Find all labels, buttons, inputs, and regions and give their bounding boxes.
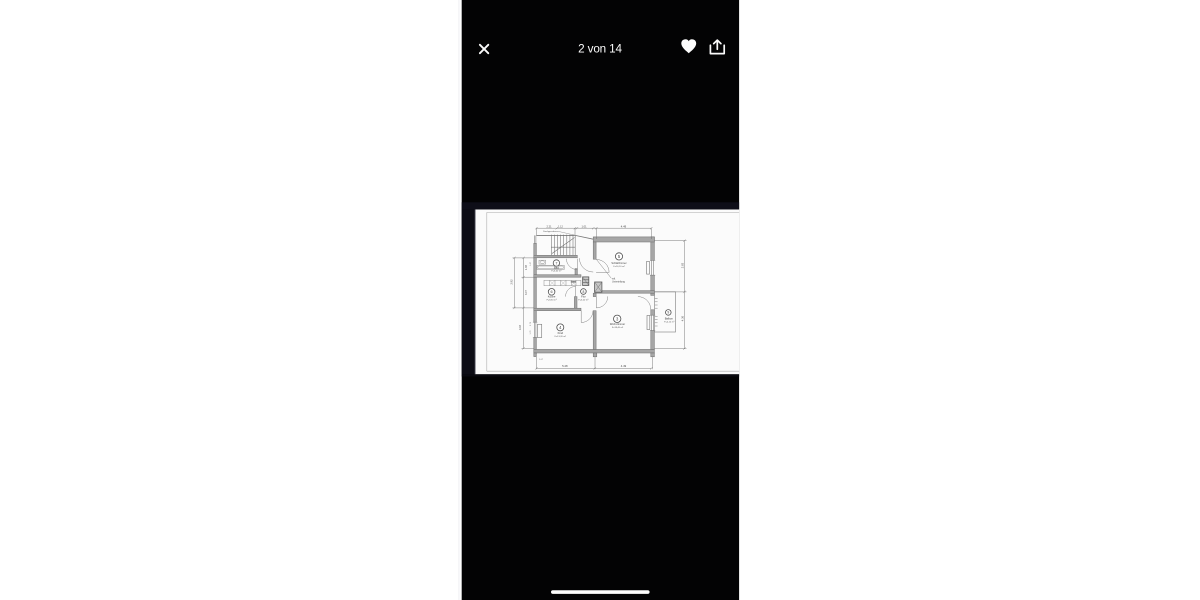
svg-text:F=6,00 m²: F=6,00 m² xyxy=(551,270,561,273)
svg-text:Flur: Flur xyxy=(581,294,586,298)
svg-text:F=8,50 m²: F=8,50 m² xyxy=(547,299,557,302)
svg-text:4.49: 4.49 xyxy=(621,225,627,229)
svg-text:F=16,10 m²: F=16,10 m² xyxy=(613,265,625,268)
svg-text:5.48: 5.48 xyxy=(562,364,568,368)
svg-text:3.07: 3.07 xyxy=(525,289,528,294)
svg-text:2 von 14: 2 von 14 xyxy=(578,42,622,55)
svg-text:Küche: Küche xyxy=(548,295,556,299)
svg-text:2.83: 2.83 xyxy=(680,262,684,268)
svg-text:4.36: 4.36 xyxy=(680,315,684,321)
svg-text:F=4,12 m²: F=4,12 m² xyxy=(664,321,674,324)
svg-text:7: 7 xyxy=(555,261,557,265)
svg-text:8: 8 xyxy=(582,290,584,294)
svg-text:Bad: Bad xyxy=(554,266,559,270)
svg-text:Dachgeschoss: Dachgeschoss xyxy=(543,231,558,233)
svg-text:2.92: 2.92 xyxy=(509,279,513,285)
svg-text:1.12: 1.12 xyxy=(558,226,563,229)
svg-text:Schlafzimmer: Schlafzimmer xyxy=(611,262,626,265)
svg-text:1.01: 1.01 xyxy=(581,225,587,229)
svg-text:1.93: 1.93 xyxy=(525,264,528,269)
svg-text:4.03: 4.03 xyxy=(519,324,522,329)
svg-text:F=18,40 m²: F=18,40 m² xyxy=(612,326,624,329)
svg-text:F=13,20 m²: F=13,20 m² xyxy=(555,335,567,338)
svg-text:Wohnzimmer: Wohnzimmer xyxy=(610,322,625,326)
svg-text:F=6,20 m²: F=6,20 m² xyxy=(578,298,588,301)
svg-text:Unterteilung: Unterteilung xyxy=(612,280,626,283)
svg-text:2.21: 2.21 xyxy=(546,225,552,229)
svg-text:Kind: Kind xyxy=(558,331,564,335)
svg-text:4.49: 4.49 xyxy=(621,364,627,368)
svg-text:6: 6 xyxy=(551,290,553,294)
svg-text:Balkon: Balkon xyxy=(665,316,674,320)
svg-text:9: 9 xyxy=(667,311,669,315)
